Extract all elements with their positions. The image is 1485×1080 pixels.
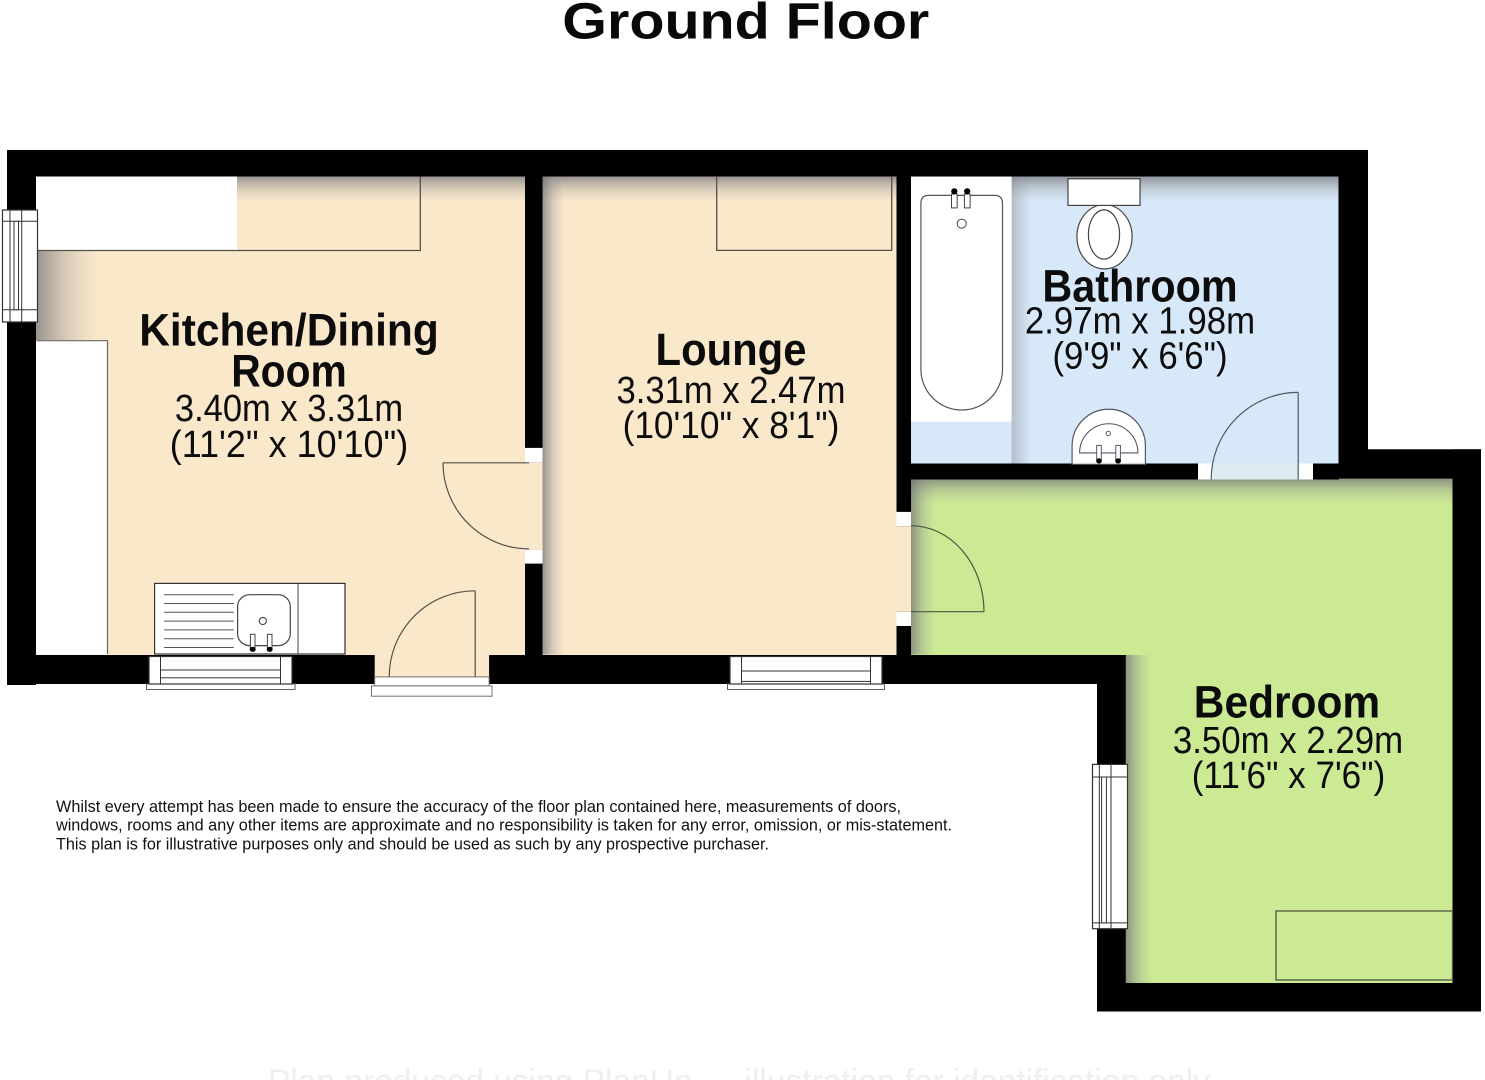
svg-text:Plan produced using PlanUp — i: Plan produced using PlanUp — illustratio… [268,1063,1210,1080]
svg-text:Ground Floor: Ground Floor [562,0,929,50]
svg-text:windows, rooms and any other i: windows, rooms and any other items are a… [55,816,952,835]
svg-text:(11'2" x 10'10"): (11'2" x 10'10") [170,424,409,466]
svg-text:(9'9" x 6'6"): (9'9" x 6'6") [1052,336,1227,378]
svg-text:Whilst every attempt has been: Whilst every attempt has been made to en… [56,797,901,816]
svg-text:Lounge: Lounge [656,324,807,375]
svg-text:(10'10" x 8'1"): (10'10" x 8'1") [623,405,840,447]
svg-text:(11'6" x 7'6"): (11'6" x 7'6") [1192,755,1386,797]
svg-text:This plan is for illustrative: This plan is for illustrative purposes o… [56,834,769,853]
